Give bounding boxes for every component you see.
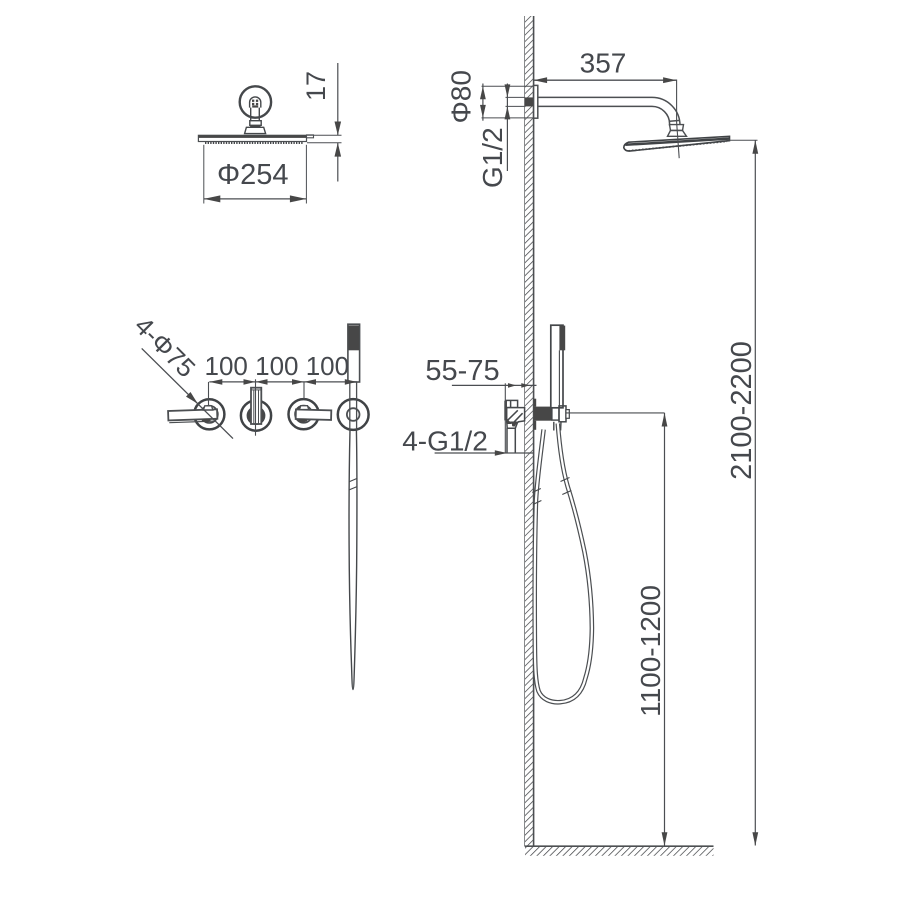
svg-text:Φ254: Φ254 (217, 159, 289, 191)
svg-text:Φ80: Φ80 (446, 70, 477, 123)
svg-text:4-G1/2: 4-G1/2 (402, 426, 488, 457)
svg-text:2100-2200: 2100-2200 (726, 341, 758, 480)
svg-text:100 100 100: 100 100 100 (205, 351, 350, 381)
svg-text:1100-1200: 1100-1200 (635, 585, 666, 717)
svg-text:357: 357 (580, 48, 627, 79)
svg-text:55-75: 55-75 (425, 355, 499, 387)
svg-text:17: 17 (301, 71, 331, 101)
svg-text:G1/2: G1/2 (477, 127, 508, 188)
